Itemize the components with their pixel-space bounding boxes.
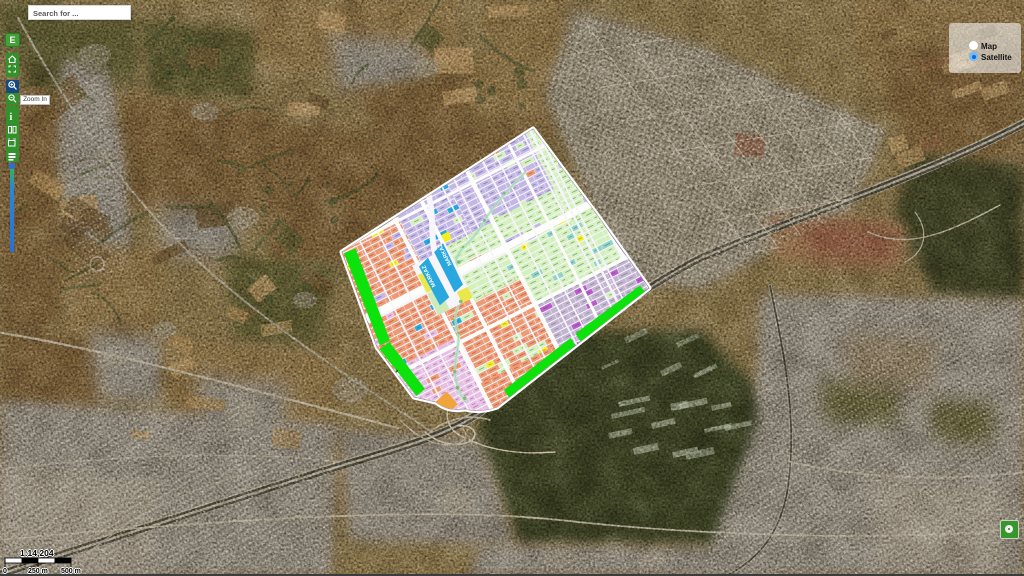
svg-text:i: i	[10, 112, 13, 123]
